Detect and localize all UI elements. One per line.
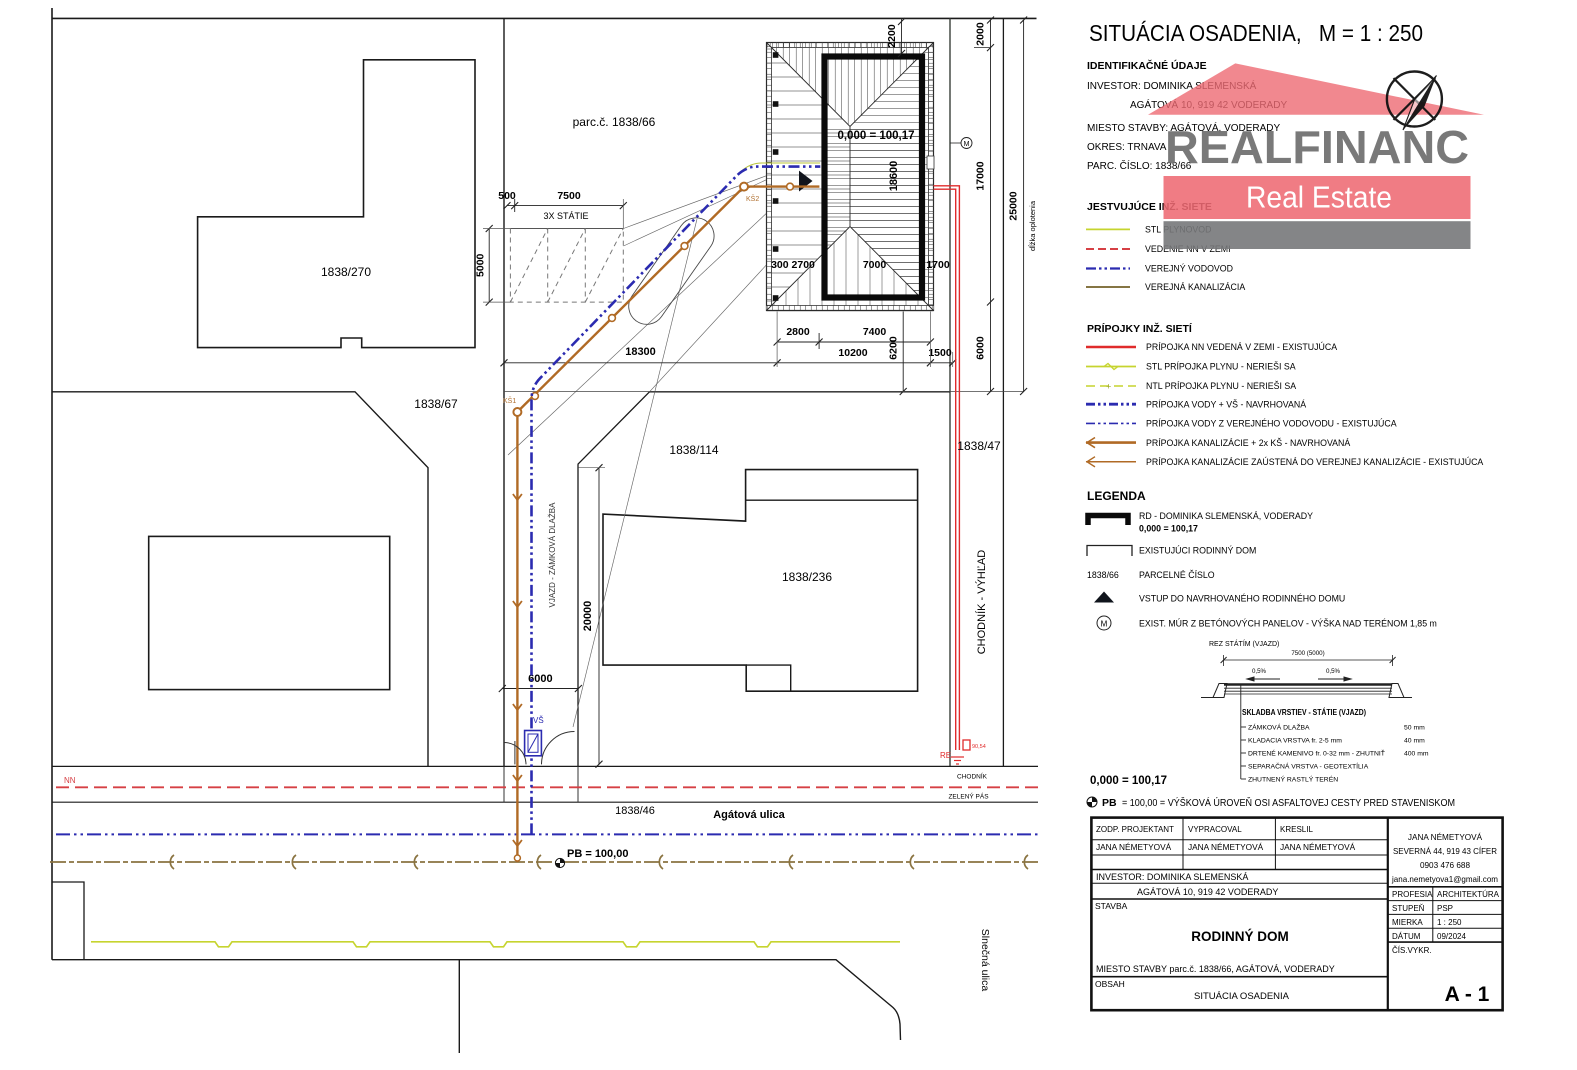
svg-text:PB = 100,00: PB = 100,00 — [567, 848, 628, 860]
svg-text:VEREJNÝ VODOVOD: VEREJNÝ VODOVOD — [1145, 264, 1233, 274]
svg-text:SITUÁCIA OSADENIA, M = 1 : 2: SITUÁCIA OSADENIA, M = 1 : 250 — [1089, 20, 1423, 46]
svg-text:18600: 18600 — [888, 161, 900, 192]
svg-text:RODINNÝ DOM: RODINNÝ DOM — [1191, 929, 1289, 944]
svg-text:2800: 2800 — [786, 326, 810, 338]
svg-text:PARCELNÉ ČÍSLO: PARCELNÉ ČÍSLO — [1139, 570, 1215, 580]
svg-text:VSTUP DO NAVRHOVANÉHO RODINNÉH: VSTUP DO NAVRHOVANÉHO RODINNÉHO DOMU — [1139, 594, 1345, 604]
svg-text:1838/67: 1838/67 — [414, 397, 458, 411]
svg-text:VJAZD - ZÁMKOVÁ DLAŽBA: VJAZD - ZÁMKOVÁ DLAŽBA — [548, 502, 557, 608]
svg-text:ZODP. PROJEKTANT: ZODP. PROJEKTANT — [1096, 825, 1174, 834]
svg-text:1838/66: 1838/66 — [1087, 570, 1119, 580]
svg-text:JANA NÉMETYOVÁ: JANA NÉMETYOVÁ — [1096, 842, 1172, 852]
svg-text:DÁTUM: DÁTUM — [1392, 932, 1421, 941]
svg-text:REALFINANC: REALFINANC — [1165, 121, 1469, 173]
svg-text:0,000 = 100,17: 0,000 = 100,17 — [837, 130, 914, 142]
svg-text:PSP: PSP — [1437, 904, 1453, 913]
svg-text:ČÍS.VYKR.: ČÍS.VYKR. — [1392, 946, 1432, 955]
svg-text:REZ STÁTÍM (VJAZD): REZ STÁTÍM (VJAZD) — [1209, 639, 1279, 648]
svg-text:OKRES: TRNAVA: OKRES: TRNAVA — [1087, 142, 1167, 153]
svg-text:LEGENDA: LEGENDA — [1087, 489, 1146, 503]
svg-text:1838/236: 1838/236 — [782, 570, 832, 584]
svg-text:JANA NÉMETYOVÁ: JANA NÉMETYOVÁ — [1408, 832, 1483, 842]
svg-text:09/2024: 09/2024 — [1437, 932, 1466, 941]
svg-text:Slnečná ulica: Slnečná ulica — [979, 929, 991, 992]
svg-text:VEREJNÁ KANALIZÁCIA: VEREJNÁ KANALIZÁCIA — [1145, 282, 1245, 292]
svg-text:0,5%: 0,5% — [1326, 668, 1341, 675]
svg-text:7000: 7000 — [863, 259, 887, 271]
svg-text:50 mm: 50 mm — [1404, 725, 1425, 732]
svg-text:1500: 1500 — [928, 347, 952, 359]
svg-text:CHODNÍK - VÝHĽAD: CHODNÍK - VÝHĽAD — [975, 550, 988, 655]
svg-text:PB: PB — [1102, 797, 1117, 809]
svg-text:0,000 = 100,17: 0,000 = 100,17 — [1090, 775, 1167, 787]
svg-text:CHODNÍK: CHODNÍK — [957, 772, 988, 781]
svg-text:IDENTIFIKAČNÉ ÚDAJE: IDENTIFIKAČNÉ ÚDAJE — [1087, 59, 1207, 72]
svg-text:SEPARAČNÁ VRSTVA - GEOTEXTÍLIA: SEPARAČNÁ VRSTVA - GEOTEXTÍLIA — [1248, 762, 1369, 771]
svg-text:0903 476 688: 0903 476 688 — [1420, 861, 1471, 870]
svg-text:NTL PRÍPOJKA PLYNU - NERIEŠI S: NTL PRÍPOJKA PLYNU - NERIEŠI SA — [1146, 381, 1296, 391]
svg-text:dĺžka oplotenia: dĺžka oplotenia — [1028, 200, 1037, 251]
svg-text:6200: 6200 — [888, 336, 900, 360]
svg-text:20000: 20000 — [582, 601, 594, 632]
svg-text:PRÍPOJKA NN VEDENÁ V ZEMI - EX: PRÍPOJKA NN VEDENÁ V ZEMI - EXISTUJÚCA — [1146, 342, 1337, 352]
svg-text:AGÁTOVÁ 10, 919 42 VODERADY: AGÁTOVÁ 10, 919 42 VODERADY — [1137, 887, 1278, 897]
svg-text:1700: 1700 — [926, 259, 950, 271]
svg-text:7500 (5000): 7500 (5000) — [1291, 650, 1324, 657]
svg-text:6000: 6000 — [975, 336, 987, 360]
svg-text:KLADACIA VRSTVA fr. 2-5 mm: KLADACIA VRSTVA fr. 2-5 mm — [1248, 738, 1342, 745]
svg-text:400 mm: 400 mm — [1404, 751, 1429, 758]
svg-text:MIESTO STAVBY parc.č. 1838/66: MIESTO STAVBY parc.č. 1838/66, AGÁTOVÁ, … — [1096, 964, 1335, 974]
svg-text:EXISTUJÚCI RODINNÝ DOM: EXISTUJÚCI RODINNÝ DOM — [1139, 546, 1256, 556]
svg-text:JANA NÉMETYOVÁ: JANA NÉMETYOVÁ — [1280, 842, 1356, 852]
svg-text:3X STÁTIE: 3X STÁTIE — [543, 211, 588, 221]
svg-text:SKLADBA VRSTIEV - STÁTIE (VJAZ: SKLADBA VRSTIEV - STÁTIE (VJAZD) — [1242, 708, 1366, 717]
svg-text:DRTENÉ KAMENIVO fr. 0-32 mm -: DRTENÉ KAMENIVO fr. 0-32 mm - ZHUTNIŤ — [1248, 749, 1385, 758]
svg-text:M: M — [964, 141, 970, 148]
svg-text:Agátová ulica: Agátová ulica — [713, 809, 785, 821]
svg-text:SITUÁCIA OSADENIA: SITUÁCIA OSADENIA — [1194, 991, 1290, 1002]
svg-text:PRÍPOJKY INŽ. SIETÍ: PRÍPOJKY INŽ. SIETÍ — [1087, 322, 1193, 335]
svg-text:0,000 = 100,17: 0,000 = 100,17 — [1139, 524, 1198, 534]
svg-text:1838/46: 1838/46 — [615, 805, 655, 817]
svg-text:1838/270: 1838/270 — [321, 265, 371, 279]
svg-text:jana.nemetyova1@gmail.com: jana.nemetyova1@gmail.com — [1391, 875, 1498, 884]
svg-text:ARCHITEKTÚRA: ARCHITEKTÚRA — [1437, 890, 1500, 899]
svg-text:SEVERNÁ 44, 919 43 CÍFER: SEVERNÁ 44, 919 43 CÍFER — [1393, 846, 1497, 856]
svg-text:5000: 5000 — [475, 253, 487, 277]
svg-text:parc.č. 1838/66: parc.č. 1838/66 — [573, 115, 656, 129]
svg-text:2000: 2000 — [975, 22, 987, 46]
svg-text:300 2700: 300 2700 — [771, 259, 815, 271]
svg-text:ZELENÝ PÁS: ZELENÝ PÁS — [948, 792, 989, 801]
svg-text:VYPRACOVAL: VYPRACOVAL — [1188, 825, 1242, 834]
svg-text:PRÍPOJKA VODY + VŠ - NAVRHOVAN: PRÍPOJKA VODY + VŠ - NAVRHOVANÁ — [1146, 399, 1306, 409]
svg-text:= 100,00 = VÝŠKOVÁ ÚROVEŇ OSI: = 100,00 = VÝŠKOVÁ ÚROVEŇ OSI ASFALTOVEJ… — [1122, 796, 1455, 809]
svg-text:EXIST. MÚR Z BETÓNOVÝCH PANELO: EXIST. MÚR Z BETÓNOVÝCH PANELOV - VÝŠKA … — [1139, 619, 1437, 629]
svg-text:NN: NN — [64, 776, 76, 785]
svg-text:PRÍPOJKA KANALIZÁCIE + 2x KŠ -: PRÍPOJKA KANALIZÁCIE + 2x KŠ - NAVRHOVAN… — [1146, 438, 1350, 448]
svg-text:VŠ: VŠ — [533, 716, 544, 725]
svg-text:7500: 7500 — [557, 190, 581, 202]
svg-text:A - 1: A - 1 — [1445, 983, 1490, 1006]
svg-text:PROFESIA: PROFESIA — [1392, 890, 1433, 899]
svg-text:25000: 25000 — [1008, 191, 1020, 220]
svg-text:INVESTOR: DOMINIKA SLEMENSKÁ: INVESTOR: DOMINIKA SLEMENSKÁ — [1096, 872, 1248, 882]
svg-text:RE: RE — [940, 751, 951, 760]
svg-text:KŠ2: KŠ2 — [746, 194, 759, 203]
svg-text:PRÍPOJKA VODY Z VEREJNÉHO VODO: PRÍPOJKA VODY Z VEREJNÉHO VODOVODU - EXI… — [1146, 419, 1397, 429]
svg-text:90,54: 90,54 — [972, 744, 986, 750]
svg-text:PRÍPOJKA KANALIZÁCIE ZAÚSTENÁ: PRÍPOJKA KANALIZÁCIE ZAÚSTENÁ DO VEREJNE… — [1146, 457, 1483, 467]
svg-text:18300: 18300 — [625, 346, 656, 358]
svg-text:+: + — [1106, 382, 1111, 392]
svg-text:500: 500 — [498, 190, 516, 202]
svg-text:M: M — [1101, 620, 1108, 629]
svg-text:10200: 10200 — [838, 347, 867, 359]
svg-text:ZÁMKOVÁ DLAŽBA: ZÁMKOVÁ DLAŽBA — [1248, 723, 1310, 732]
svg-text:STL PRÍPOJKA PLYNU - NERIEŠI S: STL PRÍPOJKA PLYNU - NERIEŠI SA — [1146, 362, 1296, 372]
svg-text:1838/47: 1838/47 — [957, 439, 1001, 453]
svg-text:ZHUTNENÝ RASTLÝ TERÉN: ZHUTNENÝ RASTLÝ TERÉN — [1248, 775, 1338, 784]
svg-text:1 : 250: 1 : 250 — [1437, 918, 1462, 927]
svg-text:MIERKA: MIERKA — [1392, 918, 1423, 927]
svg-text:KRESLIL: KRESLIL — [1280, 825, 1313, 834]
svg-text:40 mm: 40 mm — [1404, 738, 1425, 745]
svg-text:KŠ1: KŠ1 — [503, 396, 516, 405]
svg-text:0,5%: 0,5% — [1252, 668, 1267, 675]
svg-text:1838/114: 1838/114 — [669, 443, 718, 457]
svg-text:OBSAH: OBSAH — [1095, 979, 1125, 989]
svg-text:STAVBA: STAVBA — [1095, 901, 1128, 911]
svg-text:RD - DOMINIKA SLEMENSKÁ, VODER: RD - DOMINIKA SLEMENSKÁ, VODERADY — [1139, 511, 1313, 521]
svg-text:2200: 2200 — [886, 24, 898, 48]
svg-text:7400: 7400 — [863, 326, 887, 338]
svg-text:STUPEŇ: STUPEŇ — [1392, 904, 1425, 913]
svg-text:17000: 17000 — [975, 161, 987, 190]
svg-text:JANA NÉMETYOVÁ: JANA NÉMETYOVÁ — [1188, 842, 1264, 852]
svg-text:Real Estate: Real Estate — [1246, 181, 1392, 215]
